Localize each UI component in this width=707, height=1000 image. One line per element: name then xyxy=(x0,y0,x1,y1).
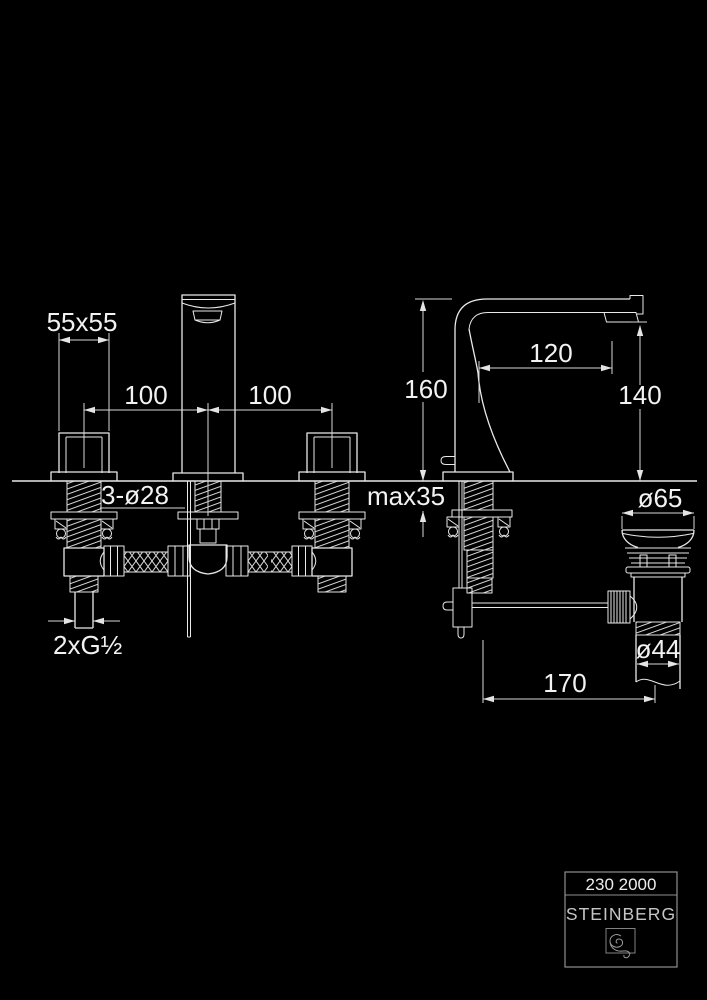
dim-right-spacing-label: 100 xyxy=(248,380,291,410)
dim-mounting-holes-label: 3-ø28 xyxy=(101,480,169,510)
dim-thread: 2xG½ xyxy=(48,618,122,660)
technical-drawing: 55x55 100 100 3-ø28 2xG½ xyxy=(0,0,707,1000)
dim-aerator-height: 140 xyxy=(618,322,661,481)
dim-spout-reach-label: 120 xyxy=(529,338,572,368)
drawing-canvas: 55x55 100 100 3-ø28 2xG½ xyxy=(0,0,707,1000)
dim-mounting-holes: 3-ø28 xyxy=(100,480,185,510)
dim-handle-size: 55x55 xyxy=(47,307,118,431)
waste-body xyxy=(608,577,682,689)
dim-waste-pipe-diameter-label: ø44 xyxy=(636,634,681,664)
dim-left-spacing-label: 100 xyxy=(124,380,167,410)
dim-aerator-height-label: 140 xyxy=(618,380,661,410)
dim-rod-length-label: 170 xyxy=(543,668,586,698)
dim-waste-pipe-diameter: ø44 xyxy=(636,634,681,667)
dim-waste-plug-diameter: ø65 xyxy=(622,483,694,529)
front-right-valve-underdeck xyxy=(299,481,365,592)
dim-waste-plug-diameter-label: ø65 xyxy=(638,483,683,513)
popup-waste xyxy=(608,530,694,689)
dim-max-thickness: max35 xyxy=(367,481,445,537)
dim-spout-height: 160 xyxy=(404,299,452,481)
break-line xyxy=(636,679,680,685)
supply-hoses xyxy=(100,546,316,576)
steinberg-swirl-icon xyxy=(610,935,630,958)
waste-plug xyxy=(622,530,694,577)
knurled-nut xyxy=(608,591,637,623)
article-number: 230 2000 xyxy=(586,875,657,894)
side-underdeck xyxy=(443,481,608,638)
dim-thread-label: 2xG½ xyxy=(53,630,122,660)
dim-max-thickness-label: max35 xyxy=(367,481,445,511)
dim-spout-reach: 120 xyxy=(479,338,612,403)
dim-handle-size-label: 55x55 xyxy=(47,307,118,337)
brand-plate: 230 2000 STEINBERG xyxy=(565,872,677,967)
aerator xyxy=(604,313,639,323)
dim-spout-height-label: 160 xyxy=(404,374,447,404)
rod-coupling xyxy=(453,588,472,627)
spout-tip xyxy=(630,296,643,315)
popup-knob xyxy=(441,457,455,465)
brand-name: STEINBERG xyxy=(566,904,676,924)
side-spout-body xyxy=(441,296,643,482)
dim-rod-length: 170 xyxy=(483,640,655,703)
